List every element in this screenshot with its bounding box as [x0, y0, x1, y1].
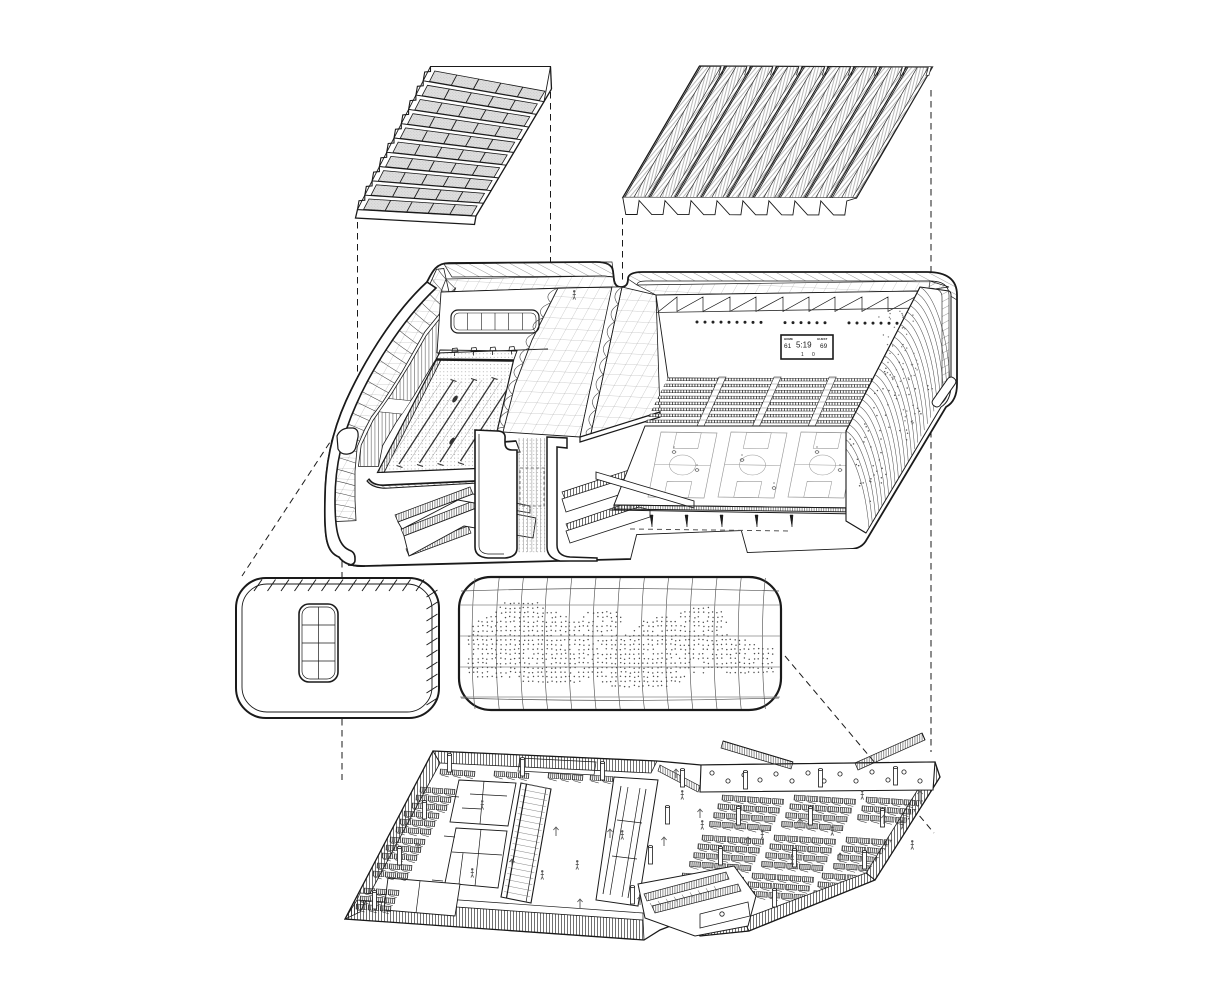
svg-text:5:19: 5:19	[796, 341, 812, 350]
svg-text:0: 0	[812, 352, 815, 358]
svg-text:1: 1	[801, 352, 804, 358]
svg-text:61: 61	[784, 343, 792, 350]
svg-text:GUEST: GUEST	[817, 337, 828, 341]
svg-text:HOME: HOME	[784, 337, 793, 341]
svg-text:69: 69	[820, 343, 828, 350]
